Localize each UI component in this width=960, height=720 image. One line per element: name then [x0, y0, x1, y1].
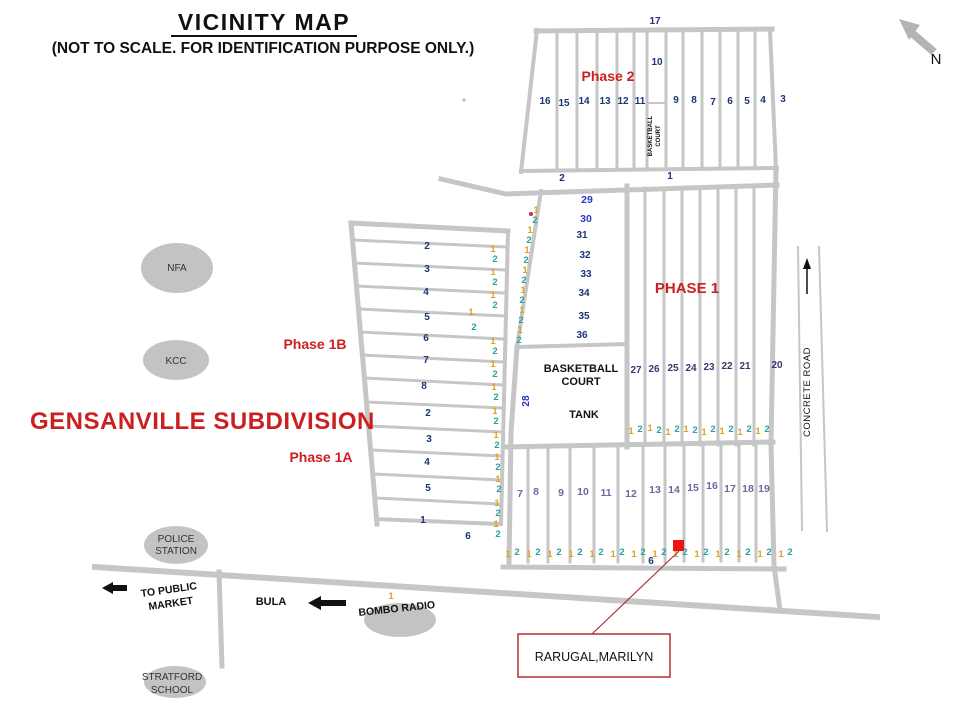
stray-red-dot: [529, 212, 533, 216]
north-arrow-shaft: [913, 34, 934, 52]
highlight-callout: RARUGAL,MARILYN: [518, 540, 684, 677]
stray-faint-dot: [463, 99, 466, 102]
block2720-lot-number: 26: [648, 364, 660, 375]
block2720-lot-number: 1: [628, 426, 634, 437]
bottomblock-lot-number: 1: [631, 549, 637, 560]
phase2-lot-number: 3: [780, 94, 786, 105]
block2936-lot-number: 30: [580, 213, 592, 225]
bottomblock-lot-number: 2: [514, 547, 519, 558]
phase2-lot-number: 13: [599, 96, 611, 107]
block2720-lot-number: 1: [683, 424, 689, 435]
leftblock-lot-number: 2: [425, 408, 431, 419]
page-subtitle: (NOT TO SCALE. FOR IDENTIFICATION PURPOS…: [52, 40, 475, 57]
north-label: N: [931, 51, 942, 68]
basketball-court-label-line1: BASKETBALL: [544, 363, 619, 375]
road-network: [95, 29, 877, 666]
leftblock-lot-number: 2: [493, 416, 498, 427]
block2720-lot-number: 20: [771, 360, 783, 371]
leftblock-lot-number: 8: [421, 381, 427, 392]
phase2-lot-number: 6: [727, 96, 733, 107]
block2936-lot-number: 31: [576, 230, 588, 241]
block2720-lot-number: 1: [647, 423, 653, 434]
block2720-lot-number: 1: [755, 426, 761, 437]
nfa-label: NFA: [167, 263, 187, 274]
bottomblock-lot-number: 2: [556, 547, 561, 558]
block2720-lot-number: 2: [728, 424, 733, 435]
leftblock-lot-number: 2: [495, 462, 500, 473]
phase2-label: Phase 2: [582, 68, 635, 84]
tank-left-road: [509, 347, 517, 566]
main-road: [95, 567, 877, 617]
concrete-road-arrow-head: [803, 258, 811, 269]
leftblock-lot-number: 2: [492, 369, 497, 380]
phase2-lot-number: 10: [651, 57, 663, 68]
bottomblock-bottom-road: [503, 567, 784, 569]
stratford-school-label-line1: STRATFORD: [142, 672, 202, 683]
tank-label: TANK: [569, 409, 599, 421]
block2720-lot-number: 2: [692, 425, 697, 436]
bottomblock-lot-number: 1: [526, 549, 532, 560]
block2720-lot-number: 25: [667, 363, 679, 374]
block2720-lot-numbers: 27262524232221201212121212121212: [628, 360, 783, 438]
phase1-top-road: [441, 179, 777, 194]
leftblock-lot-number: 2: [494, 440, 499, 451]
block2720-lot-number: 2: [637, 424, 642, 435]
bombo-arrow-icon: [308, 596, 346, 610]
bottomblock-lot-number: 2: [619, 547, 624, 558]
leftblock-lot-number: 5: [425, 483, 431, 494]
bula-label: BULA: [256, 596, 287, 608]
bottomblock-lot-number: 1: [694, 549, 700, 560]
leftblock-lot-number: 6: [423, 333, 429, 344]
block2720-lot-number: 2: [656, 425, 661, 436]
block2720-lot-number: 2: [764, 424, 769, 435]
bottomblock-lot-number: 2: [787, 547, 792, 558]
block2720-lot-number: 1: [665, 427, 671, 438]
leftblock-lot-number: 1: [468, 307, 474, 318]
block2720-lot-number: 21: [739, 361, 751, 372]
west-arrow-icon: [102, 582, 127, 594]
leftblock-lot-numbers: 234567823451612121212121212121212121212: [420, 241, 501, 542]
bottomblock-lot-number: 2: [724, 547, 729, 558]
bottomblock-lot-number: 2: [640, 547, 645, 558]
leftblock-lot-number: 2: [496, 484, 501, 495]
block2936-lot-number: 33: [580, 269, 592, 280]
phase2-lot-number: 15: [558, 98, 570, 109]
police-station-ellipse: [144, 526, 208, 564]
bottomblock-lot-number: 11: [600, 487, 611, 499]
phase1a-label: Phase 1A: [289, 449, 352, 465]
bottomblock-lot-number: 1: [610, 549, 616, 560]
leftblock-lot-number: 3: [426, 434, 432, 445]
block2936-lot-number: 2: [516, 335, 521, 346]
basketball-court-label-line2: COURT: [561, 376, 600, 388]
callout-leader-line: [592, 551, 679, 634]
bottomblock-lot-number: 1: [736, 549, 742, 560]
leftblock-lot-number: 2: [492, 346, 497, 357]
block2936-lot-number: 2: [532, 215, 537, 226]
block2720-street-lines: [645, 188, 754, 445]
phase2-lot-number: 1: [667, 171, 673, 182]
bottomblock-lot-number: 2: [577, 547, 582, 558]
leftblock-lot-number: 2: [493, 392, 498, 403]
phase2-lot-number: 2: [559, 173, 565, 184]
block2936-lot-number: 36: [576, 330, 588, 341]
leftblock-lot-number: 2: [492, 254, 497, 265]
leftblock-lot-number: 2: [424, 241, 430, 252]
leftblock-lot-number: 2: [492, 277, 497, 288]
leftblock-lot-number: 6: [465, 531, 471, 542]
bottomblock-lot-number: 19: [758, 483, 770, 495]
block2720-lot-number: 24: [685, 363, 697, 374]
block2720-lot-number: 22: [721, 361, 733, 372]
stratford-school-label-line2: SCHOOL: [151, 685, 194, 696]
bottomblock-lot-number: 13: [649, 484, 661, 496]
subdivision-name: GENSANVILLE SUBDIVISION: [30, 408, 375, 435]
phase2-lot-number: 16: [539, 96, 551, 107]
phase2-lot-number: 7: [710, 97, 716, 108]
phase2-lot-number: 17: [649, 16, 661, 27]
lot-28-label: 28: [521, 395, 532, 407]
right-boundary-road: [771, 168, 780, 610]
leftblock-lot-number: 2: [495, 508, 500, 519]
bottomblock-lot-number: 12: [625, 488, 637, 500]
leftblock-lot-number: 2: [492, 300, 497, 311]
block2720-lot-number: 1: [737, 427, 743, 438]
stray-lot-number: 1: [388, 591, 394, 602]
bottomblock-lot-number: 17: [724, 483, 736, 495]
phase2-basketball-court-label: BASKETBALL COURT: [648, 115, 662, 156]
stray-lot-numbers: 1: [388, 591, 394, 602]
block2936-lot-number: 35: [578, 311, 590, 322]
bottomblock-lot-number: 1: [568, 549, 574, 560]
bottomblock-lot-number: 1: [778, 549, 784, 560]
leftblock-lot-number: 2: [495, 529, 500, 540]
bottomblock-lot-number: 2: [766, 547, 771, 558]
bottomblock-lot-number: 15: [687, 482, 699, 494]
bottomblock-lot-number: 2: [598, 547, 603, 558]
bottomblock-lot-number: 2: [703, 547, 708, 558]
bottomblock-lot-number: 2: [661, 547, 666, 558]
leftblock-lot-number: 4: [423, 287, 429, 298]
page-title: VICINITY MAP: [178, 9, 350, 35]
phase2-bb-line2: COURT: [656, 125, 662, 147]
stratford-road: [219, 572, 222, 666]
phase2-lot-number: 8: [691, 95, 697, 106]
phase2-lot-number: 11: [635, 96, 646, 107]
phase2-lot-number: 9: [673, 95, 679, 106]
block2936-lot-number: 29: [581, 194, 593, 206]
bottomblock-street-lines: [528, 445, 756, 562]
bottomblock-lot-number: 1: [757, 549, 763, 560]
leftblock-lot-number: 1: [420, 515, 426, 526]
leftblock-lot-number: 3: [424, 264, 430, 275]
leftblock-lot-number: 4: [424, 457, 430, 468]
bottomblock-lot-number: 10: [577, 486, 589, 498]
block2720-lot-number: 2: [746, 424, 751, 435]
bottomblock-lot-number: 16: [706, 480, 718, 492]
bottomblock-lot-number: 1: [589, 549, 595, 560]
block2936-lot-number: 34: [578, 288, 590, 299]
phase1-label: PHASE 1: [655, 280, 719, 297]
phase2-bb-line1: BASKETBALL: [648, 115, 654, 156]
highlight-lot-marker: [673, 540, 684, 551]
bottomblock-lot-number: 7: [517, 488, 523, 500]
bottomblock-lot-number: 1: [715, 549, 721, 560]
phase1b-label: Phase 1B: [283, 336, 346, 352]
block2936-lot-number: 32: [579, 250, 591, 261]
block2720-lot-number: 27: [630, 365, 642, 376]
police-station-label-line1: POLICE: [158, 534, 195, 545]
vicinity-map-canvas: VICINITY MAP (NOT TO SCALE. FOR IDENTIFI…: [0, 0, 960, 720]
bottomblock-lot-number: 9: [558, 487, 564, 499]
leftblock-lot-number: 7: [423, 355, 429, 366]
kcc-label: KCC: [165, 356, 186, 367]
police-station-label-line2: STATION: [155, 546, 197, 557]
bottomblock-lot-number: 1: [505, 549, 511, 560]
bottomblock-lot-number: 2: [535, 547, 540, 558]
bottomblock-lot-number: 18: [742, 483, 754, 495]
to-public-market-label: TO PUBLIC MARKET: [140, 580, 200, 614]
block2720-lot-number: 1: [719, 426, 725, 437]
phase2-lot-number: 4: [760, 95, 766, 106]
bottomblock-lot-number: 8: [533, 486, 539, 498]
leftblock-lot-number: 5: [424, 312, 430, 323]
phase2-lot-number: 5: [744, 96, 750, 107]
vicinity-map-page: VICINITY MAP (NOT TO SCALE. FOR IDENTIFI…: [0, 0, 960, 720]
block2720-lot-number: 1: [701, 427, 707, 438]
concrete-road-label: CONCRETE ROAD: [802, 347, 813, 437]
phase2-lot-number: 14: [578, 96, 590, 107]
block2720-lot-number: 2: [710, 424, 715, 435]
leftblock-lot-number: 2: [471, 322, 476, 333]
bottomblock-lot-number: 14: [668, 484, 680, 496]
block2720-lot-number: 2: [674, 424, 679, 435]
bottomblock-lot-number: 2: [745, 547, 750, 558]
phase2-lot-number: 12: [617, 96, 629, 107]
block2720-lot-number: 23: [703, 362, 715, 373]
north-arrow: N: [899, 19, 941, 68]
bottomblock-lot-number: 1: [547, 549, 553, 560]
mid-cross-road: [504, 442, 773, 447]
owner-name-label: RARUGAL,MARILYN: [535, 650, 654, 664]
bottomblock-lot-number: 1: [652, 549, 658, 560]
